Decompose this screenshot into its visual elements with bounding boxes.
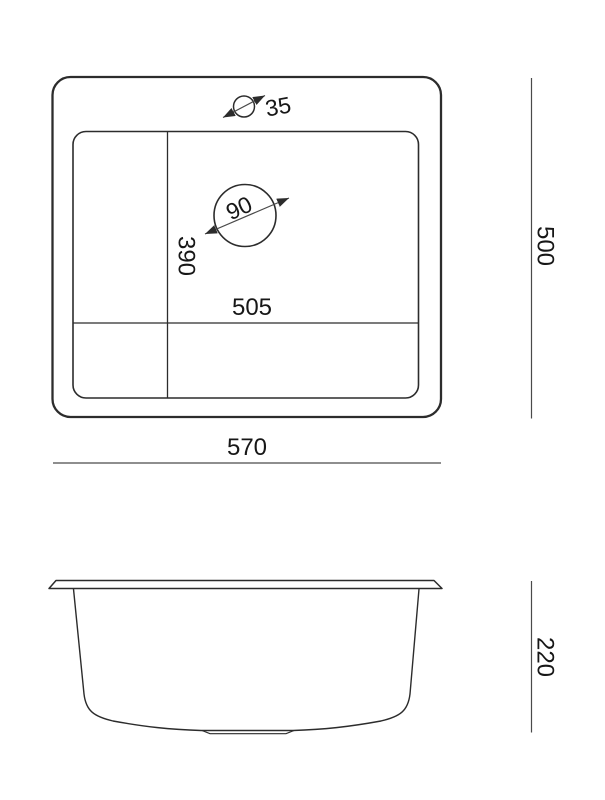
- overall-width-dim-label: 570: [227, 434, 267, 461]
- faucet-hole-dim-line: [223, 96, 265, 118]
- technical-drawing-page: 35 90 390 505 570 500: [0, 0, 605, 800]
- top-view: 35 90 390 505 570 500: [53, 77, 559, 463]
- bowl-outline: [73, 132, 419, 399]
- overall-depth-dim-label: 500: [532, 226, 559, 266]
- faucet-hole-dim-label: 35: [263, 91, 293, 121]
- bowl-width-dim-label: 505: [232, 294, 272, 321]
- rim-profile: [49, 581, 442, 589]
- body-profile: [74, 589, 420, 731]
- bowl-length-dim-label: 390: [173, 236, 200, 276]
- height-dim-label: 220: [532, 637, 559, 677]
- drain-dim-label: 90: [222, 191, 256, 225]
- sink-drawing-canvas: 35 90 390 505 570 500: [0, 0, 605, 800]
- side-view: 220: [49, 581, 559, 734]
